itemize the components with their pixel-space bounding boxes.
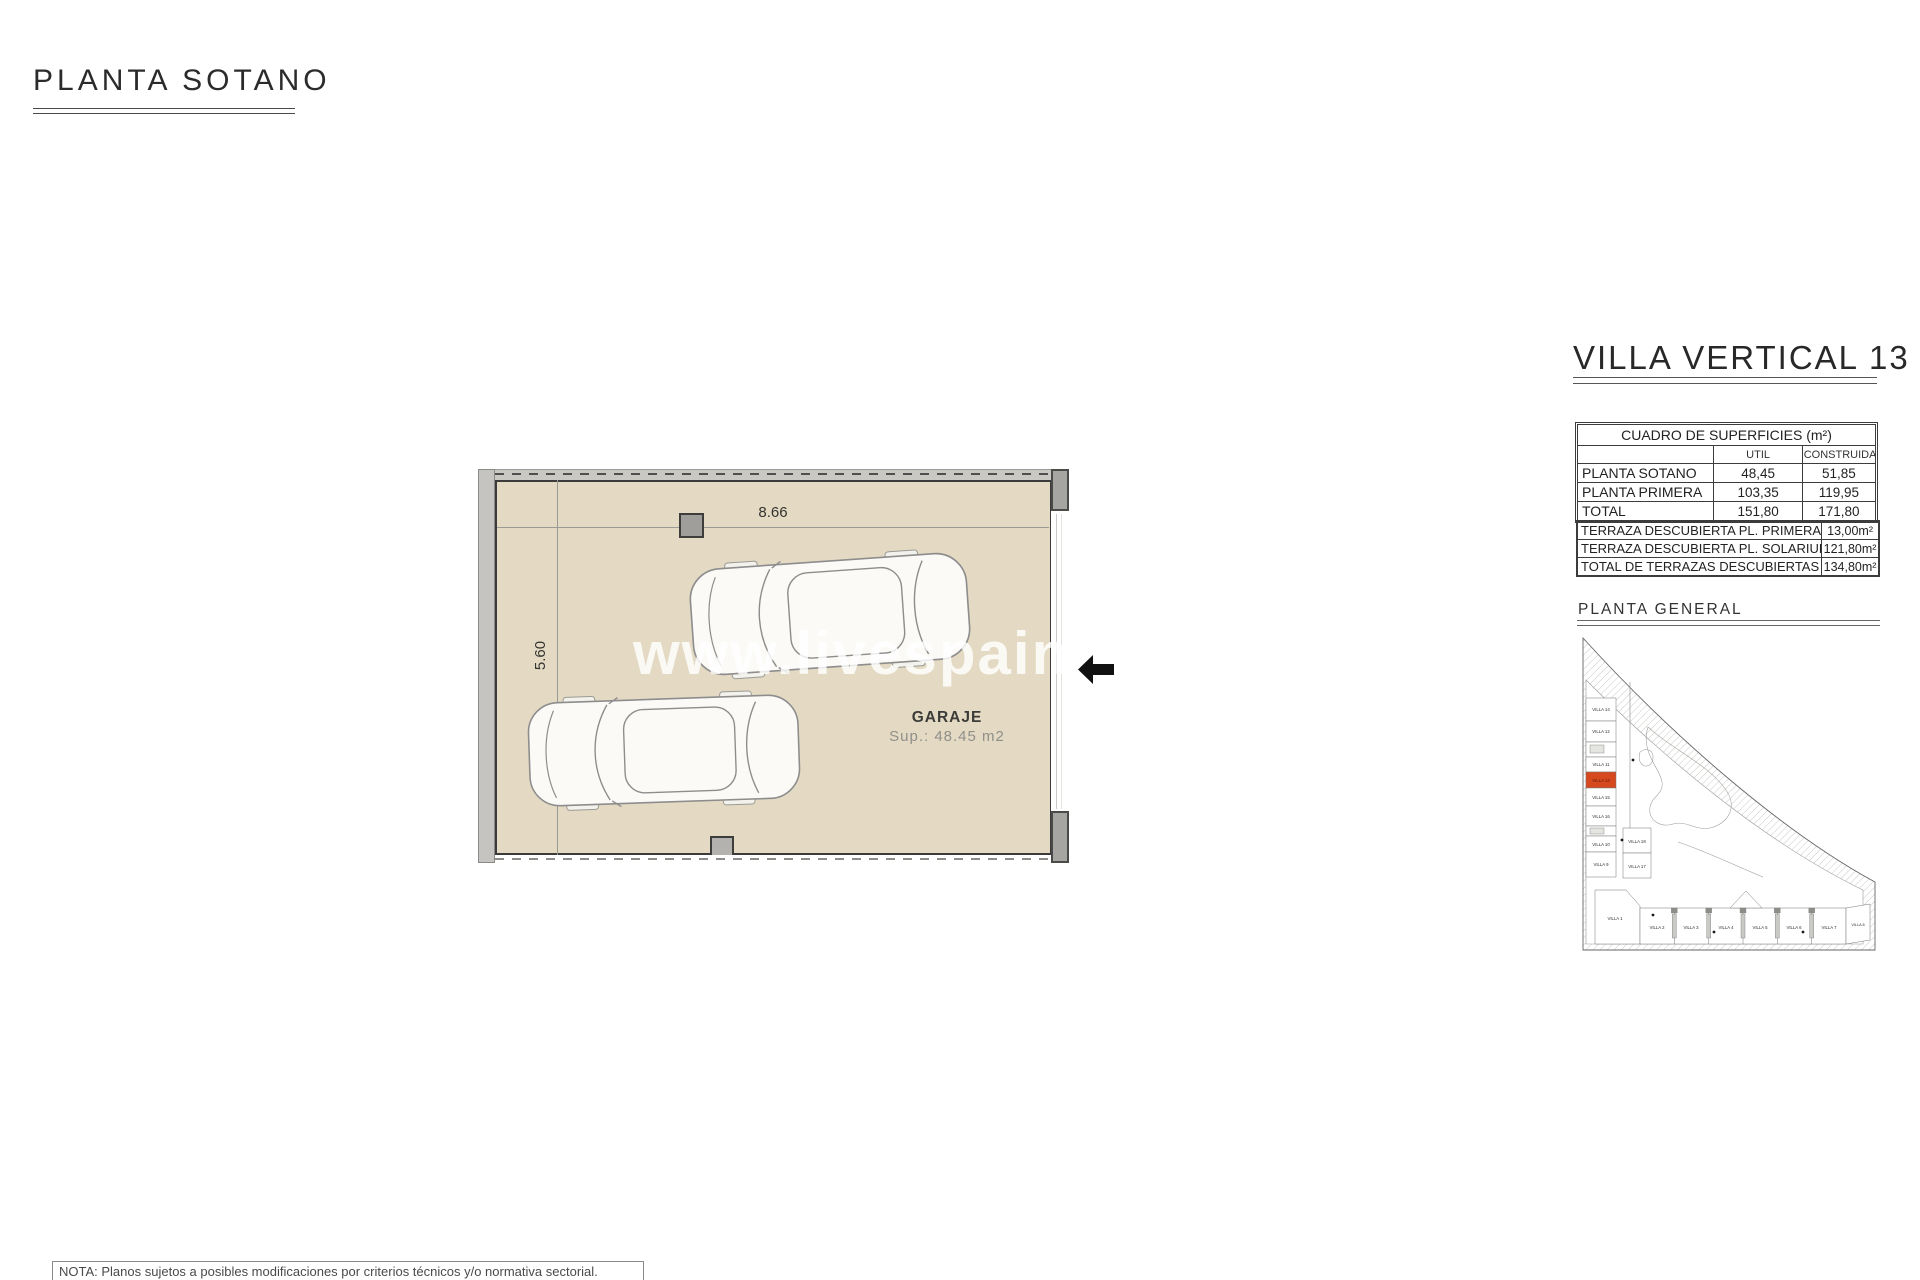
villa-column — [1586, 698, 1616, 877]
villa-label: VILLA 15 — [1592, 795, 1610, 800]
top-wall-dashed-line — [495, 473, 1069, 475]
table-row: TERRAZA DESCUBIERTA PL. PRIMERA 13,00m² — [1577, 521, 1879, 540]
left-wall — [478, 469, 495, 863]
villa-label: VILLA 9 — [1593, 862, 1609, 867]
villa-label: VILLA 8 — [1851, 923, 1864, 927]
villa-label: VILLA 10 — [1592, 842, 1610, 847]
table-row: TOTAL 151,80 171,80 — [1578, 502, 1876, 521]
room-label: GARAJE — [857, 709, 1037, 727]
villa-label: VILLA 17 — [1628, 864, 1646, 869]
villa-label: VILLA 16 — [1592, 814, 1610, 819]
villa-label: VILLA 14 — [1592, 707, 1610, 712]
entrance-arrow-icon — [1078, 651, 1115, 688]
row-label: PLANTA SOTANO — [1578, 464, 1714, 483]
garage-floor-plan: 8.66 5.60 GARAJE Sup.: 48.45 m2 www.live… — [478, 469, 1069, 865]
table-row: PLANTA PRIMERA 103,35 119,95 — [1578, 483, 1876, 502]
page-title: PLANTA SOTANO — [33, 64, 331, 98]
villa-label: VILLA 2 — [1649, 925, 1665, 930]
villa-label: VILLA 4 — [1718, 925, 1734, 930]
car-bottom — [523, 688, 805, 813]
surfaces-col-empty — [1578, 446, 1714, 464]
site-plan-title: PLANTA GENERAL — [1578, 601, 1743, 619]
villa-label: VILLA 5 — [1752, 925, 1768, 930]
height-dimension-label: 5.60 — [532, 641, 549, 670]
room-area-label: Sup.: 48.45 m2 — [857, 728, 1037, 745]
pillar-bottom-right — [1051, 811, 1069, 863]
row-construida: 51,85 — [1802, 464, 1875, 483]
row-util: 103,35 — [1714, 483, 1802, 502]
row-label: TOTAL DE TERRAZAS DESCUBIERTAS — [1577, 558, 1822, 577]
row-value: 121,80m² — [1822, 540, 1879, 558]
villa-label-highlighted: VILLA 13 — [1592, 778, 1610, 783]
villa-label: VILLA 1 — [1607, 916, 1623, 921]
structural-column — [679, 513, 704, 538]
site-plan-title-underline — [1577, 620, 1880, 626]
table-row: PLANTA SOTANO 48,45 51,85 — [1578, 464, 1876, 483]
villa-middle — [1623, 828, 1651, 878]
watermark: www.livespainfor — [633, 619, 1069, 688]
site-plan-map: VILLA 14 VILLA 12 VILLA 11 VILLA 13 VILL… — [1578, 632, 1880, 954]
surfaces-col-util: UTIL — [1714, 446, 1802, 464]
row-label: TERRAZA DESCUBIERTA PL. PRIMERA — [1577, 521, 1822, 540]
surfaces-col-construida: CONSTRUIDA — [1802, 446, 1875, 464]
villa-label: VILLA 12 — [1592, 729, 1610, 734]
row-label: PLANTA PRIMERA — [1578, 483, 1714, 502]
villa-title-underline — [1573, 377, 1877, 384]
surfaces-table: CUADRO DE SUPERFICIES (m²) UTIL CONSTRUI… — [1575, 422, 1878, 523]
terraces-table: TERRAZA DESCUBIERTA PL. PRIMERA 13,00m² … — [1576, 520, 1880, 577]
villa-label: VILLA 7 — [1821, 925, 1837, 930]
villa-label: VILLA 11 — [1592, 762, 1610, 767]
villa-label: VILLA 6 — [1786, 925, 1802, 930]
row-value: 134,80m² — [1822, 558, 1879, 577]
row-label: TERRAZA DESCUBIERTA PL. SOLARIUM — [1577, 540, 1822, 558]
villa-title: VILLA VERTICAL 13 — [1573, 339, 1877, 377]
bottom-wall-stub — [710, 836, 734, 855]
width-dimension-line — [497, 527, 1049, 528]
surfaces-table-title: CUADRO DE SUPERFICIES (m²) — [1578, 425, 1876, 446]
table-row: TOTAL DE TERRAZAS DESCUBIERTAS 134,80m² — [1577, 558, 1879, 577]
villa-label: VILLA 3 — [1683, 925, 1699, 930]
row-construida: 119,95 — [1802, 483, 1875, 502]
bottom-wall-dashed-line — [495, 858, 1069, 860]
width-dimension-label: 8.66 — [728, 504, 818, 521]
row-label: TOTAL — [1578, 502, 1714, 521]
villa-label: VILLA 18 — [1628, 839, 1646, 844]
page-title-underline — [33, 108, 295, 114]
pillar-top-right — [1051, 469, 1069, 511]
row-util: 151,80 — [1714, 502, 1802, 521]
row-util: 48,45 — [1714, 464, 1802, 483]
plan-sheet: PLANTA SOTANO 8.66 5.60 GARAJE Sup.: 48.… — [0, 0, 1920, 1280]
row-construida: 171,80 — [1802, 502, 1875, 521]
row-value: 13,00m² — [1822, 521, 1879, 540]
table-row: TERRAZA DESCUBIERTA PL. SOLARIUM 121,80m… — [1577, 540, 1879, 558]
note: NOTA: Planos sujetos a posibles modifica… — [52, 1261, 644, 1280]
